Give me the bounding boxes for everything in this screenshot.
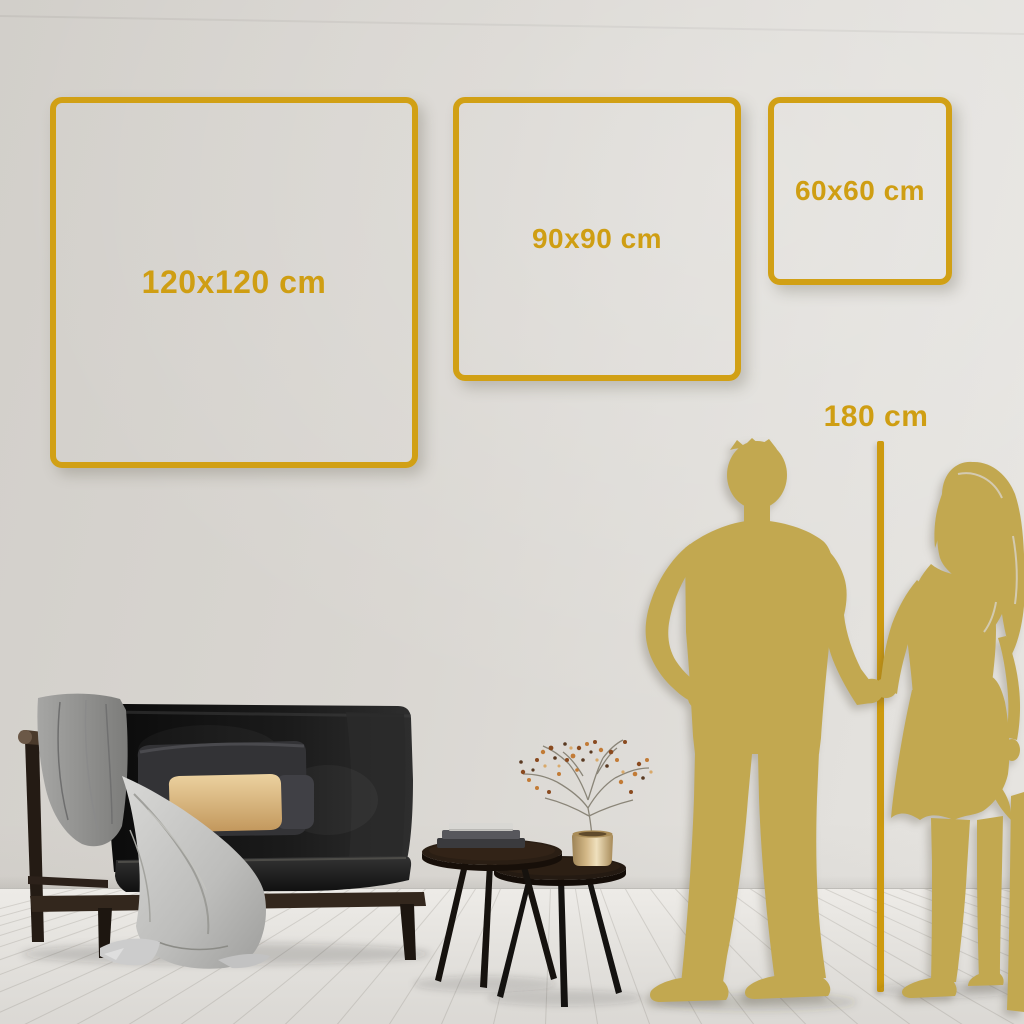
man-silhouette bbox=[646, 438, 889, 1002]
brass-vase bbox=[572, 830, 613, 866]
ceiling-line bbox=[0, 0, 1024, 60]
woman-silhouette bbox=[875, 462, 1024, 1012]
couple-silhouette bbox=[640, 436, 1024, 1020]
size-frame-60x60: 60x60 cm bbox=[768, 97, 952, 285]
size-label-60x60: 60x60 cm bbox=[795, 175, 925, 207]
plant-berries bbox=[519, 740, 652, 794]
size-frame-120x120: 120x120 cm bbox=[50, 97, 418, 468]
size-frame-90x90: 90x90 cm bbox=[453, 97, 741, 381]
books-stack bbox=[437, 823, 525, 848]
size-guide-image: 120x120 cm 90x90 cm 60x60 cm bbox=[0, 0, 1024, 1024]
throw-blanket-back bbox=[37, 694, 127, 847]
sofa-illustration bbox=[8, 690, 433, 970]
size-label-90x90: 90x90 cm bbox=[532, 223, 662, 255]
height-reference-label: 180 cm bbox=[791, 400, 961, 434]
branch-plant bbox=[523, 740, 649, 836]
size-label-120x120: 120x120 cm bbox=[142, 264, 327, 301]
